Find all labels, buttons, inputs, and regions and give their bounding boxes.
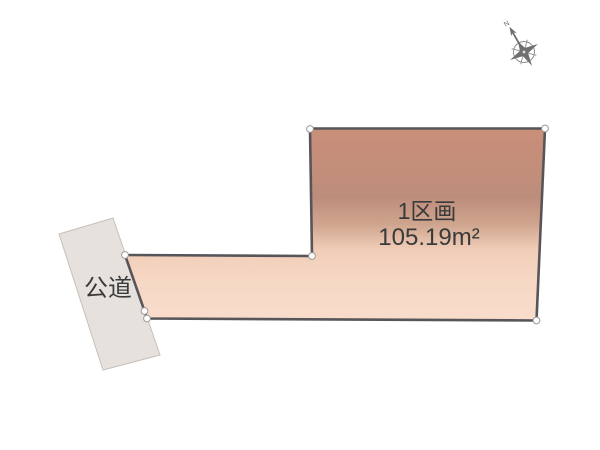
vertex-marker <box>144 315 151 322</box>
compass-icon: N <box>492 13 546 74</box>
vertex-marker <box>309 253 316 260</box>
road-label: 公道 <box>84 275 132 302</box>
plot-area-label: 105.19m² <box>378 224 479 251</box>
land-plot-diagram: 1区画 105.19m² 公道 N <box>0 0 600 450</box>
vertex-marker <box>141 308 148 315</box>
compass-star <box>504 34 546 74</box>
plot-diagram-canvas: 1区画 105.19m² 公道 N <box>0 0 600 450</box>
vertex-marker <box>307 126 314 133</box>
vertex-marker <box>533 317 540 324</box>
vertex-marker <box>542 125 549 132</box>
vertex-marker <box>122 252 129 259</box>
plot-label: 1区画 <box>398 198 457 224</box>
land-plot-shape <box>125 129 545 321</box>
